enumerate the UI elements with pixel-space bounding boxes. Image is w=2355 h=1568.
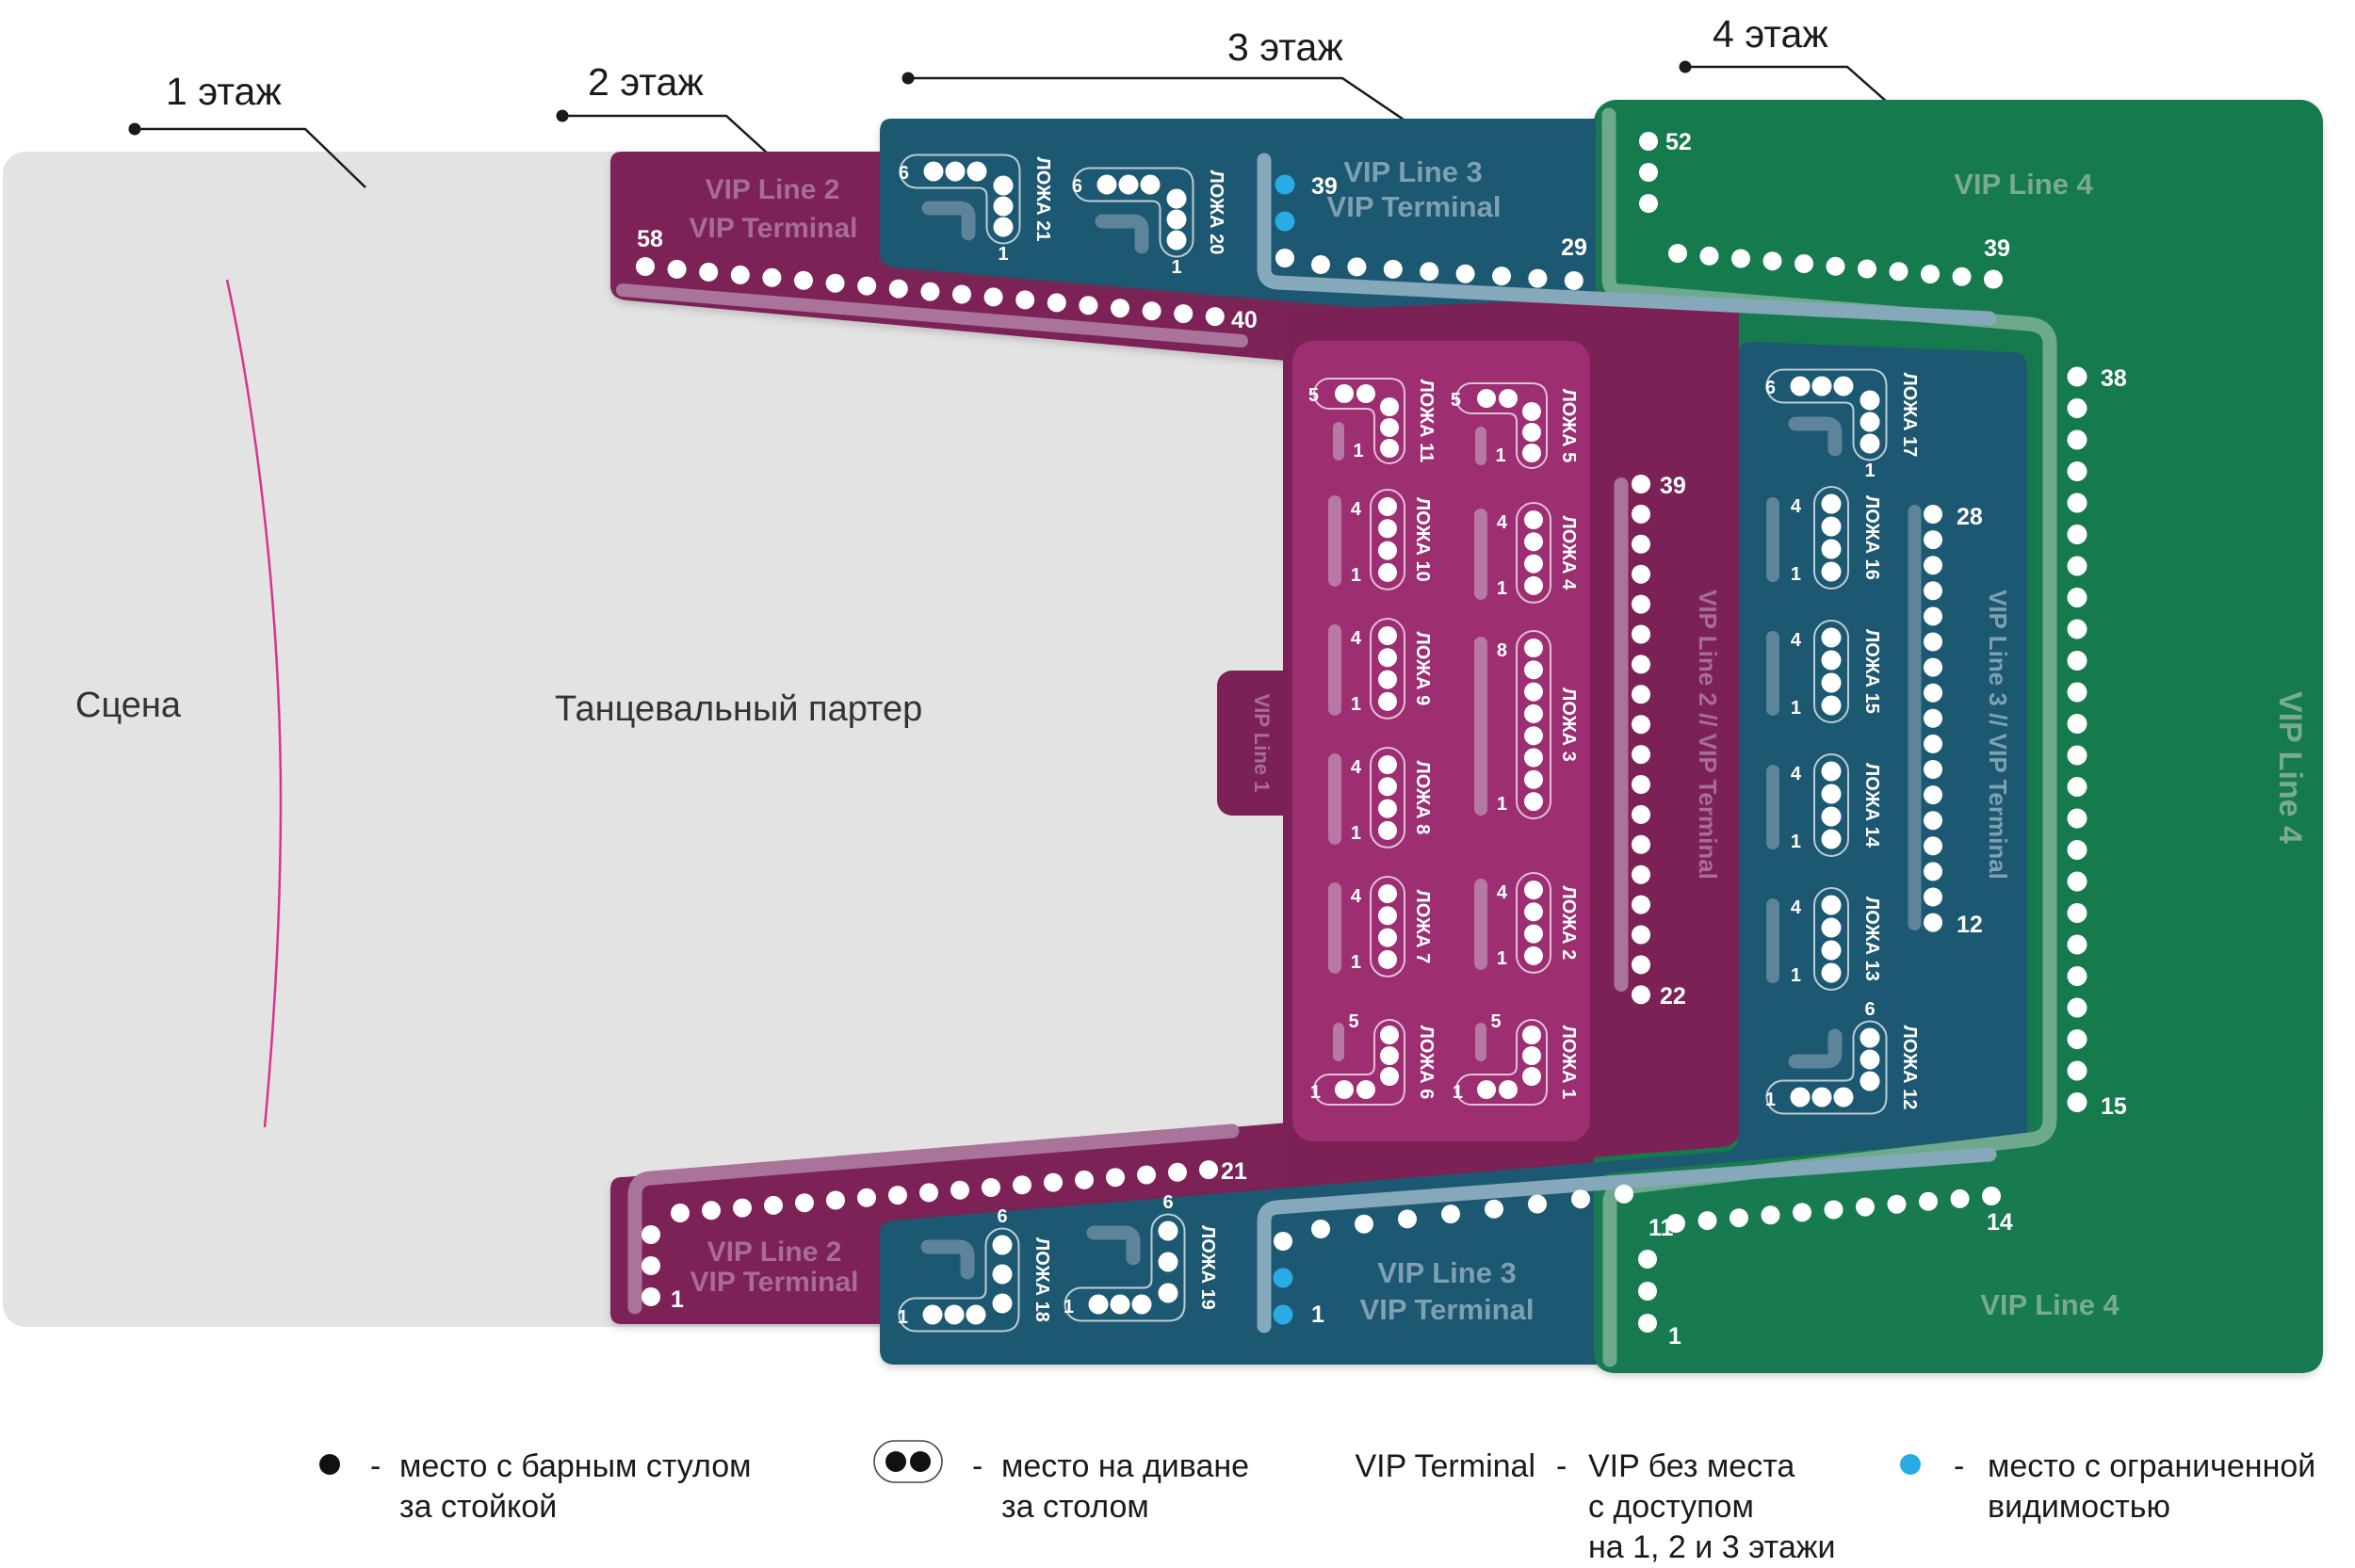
svg-text:39: 39 bbox=[1660, 473, 1686, 499]
svg-text:VIP Line 4: VIP Line 4 bbox=[1954, 168, 2093, 201]
svg-text:ЛОЖА 16: ЛОЖА 16 bbox=[1861, 495, 1882, 580]
svg-text:ЛОЖА 6: ЛОЖА 6 bbox=[1416, 1026, 1437, 1100]
svg-text:место с ограниченной: место с ограниченной bbox=[1988, 1448, 2315, 1484]
svg-text:VIP Terminal: VIP Terminal bbox=[690, 213, 858, 244]
svg-text:видимостью: видимостью bbox=[1988, 1489, 2170, 1525]
svg-text:VIP Line 2: VIP Line 2 bbox=[706, 174, 840, 205]
svg-text:5: 5 bbox=[1451, 390, 1461, 411]
svg-text:ЛОЖА 5: ЛОЖА 5 bbox=[1558, 389, 1579, 463]
svg-text:VIP Line 2 // VIP Terminal: VIP Line 2 // VIP Terminal bbox=[1694, 590, 1722, 880]
svg-text:6: 6 bbox=[1072, 176, 1082, 197]
svg-text:1: 1 bbox=[1351, 565, 1361, 586]
svg-text:VIP Terminal: VIP Terminal bbox=[1360, 1293, 1535, 1326]
svg-text:VIP Line 3: VIP Line 3 bbox=[1377, 1256, 1517, 1289]
svg-text:1: 1 bbox=[1351, 952, 1361, 973]
svg-text:ЛОЖА 10: ЛОЖА 10 bbox=[1412, 497, 1433, 582]
svg-text:58: 58 bbox=[637, 226, 663, 252]
svg-text:1: 1 bbox=[1791, 564, 1801, 585]
svg-text:28: 28 bbox=[1957, 504, 1983, 530]
svg-text:4: 4 bbox=[1497, 882, 1508, 903]
svg-text:ЛОЖА 19: ЛОЖА 19 bbox=[1197, 1225, 1218, 1310]
svg-text:1: 1 bbox=[1310, 1082, 1321, 1103]
svg-text:1: 1 bbox=[1497, 578, 1507, 599]
svg-text:4: 4 bbox=[1351, 628, 1362, 649]
svg-text:ЛОЖА 7: ЛОЖА 7 bbox=[1412, 890, 1433, 964]
svg-text:ЛОЖА 11: ЛОЖА 11 bbox=[1416, 380, 1437, 463]
svg-text:место с барным стулом: место с барным стулом bbox=[399, 1448, 752, 1484]
svg-text:6: 6 bbox=[1765, 378, 1776, 398]
svg-text:6: 6 bbox=[899, 163, 909, 184]
svg-text:Танцевальный партер: Танцевальный партер bbox=[555, 689, 922, 729]
svg-text:4: 4 bbox=[1791, 630, 1802, 651]
svg-text:1: 1 bbox=[1171, 257, 1181, 278]
svg-text:ЛОЖА 9: ЛОЖА 9 bbox=[1412, 632, 1433, 706]
svg-text:-: - bbox=[1556, 1448, 1567, 1484]
svg-text:1: 1 bbox=[1864, 461, 1875, 481]
svg-text:1: 1 bbox=[1791, 832, 1801, 852]
svg-text:-: - bbox=[972, 1448, 983, 1484]
svg-text:4: 4 bbox=[1791, 496, 1802, 517]
svg-text:-: - bbox=[370, 1448, 381, 1484]
svg-text:22: 22 bbox=[1660, 983, 1686, 1010]
svg-text:VIP Line 1: VIP Line 1 bbox=[1250, 694, 1274, 793]
svg-text:4: 4 bbox=[1351, 886, 1362, 907]
svg-text:за столом: за столом bbox=[1001, 1489, 1149, 1525]
svg-text:21: 21 bbox=[1221, 1158, 1247, 1185]
svg-text:5: 5 bbox=[1490, 1011, 1501, 1032]
svg-text:1: 1 bbox=[1497, 948, 1507, 969]
svg-text:ЛОЖА 3: ЛОЖА 3 bbox=[1558, 687, 1579, 762]
svg-text:8: 8 bbox=[1497, 640, 1507, 661]
svg-text:14: 14 bbox=[1987, 1209, 2013, 1236]
svg-text:3 этаж: 3 этаж bbox=[1227, 25, 1343, 69]
svg-text:4: 4 bbox=[1791, 764, 1802, 784]
svg-text:ЛОЖА 1: ЛОЖА 1 bbox=[1558, 1026, 1579, 1100]
svg-text:место на диване: место на диване bbox=[1001, 1448, 1249, 1484]
svg-text:6: 6 bbox=[1864, 999, 1875, 1020]
svg-text:ЛОЖА 20: ЛОЖА 20 bbox=[1206, 170, 1226, 255]
svg-text:1: 1 bbox=[1791, 698, 1801, 719]
svg-text:на 1, 2 и 3 этажи: на 1, 2 и 3 этажи bbox=[1588, 1529, 1836, 1565]
svg-text:40: 40 bbox=[1231, 307, 1258, 333]
svg-text:с доступом: с доступом bbox=[1588, 1489, 1754, 1525]
svg-text:1: 1 bbox=[1064, 1297, 1074, 1317]
svg-text:ЛОЖА 17: ЛОЖА 17 bbox=[1899, 373, 1920, 458]
svg-text:ЛОЖА 13: ЛОЖА 13 bbox=[1861, 897, 1882, 981]
svg-text:ЛОЖА 12: ЛОЖА 12 bbox=[1899, 1026, 1920, 1110]
svg-text:4: 4 bbox=[1497, 512, 1508, 533]
svg-text:6: 6 bbox=[997, 1206, 1007, 1227]
svg-text:5: 5 bbox=[1348, 1011, 1358, 1032]
svg-text:15: 15 bbox=[2101, 1093, 2127, 1120]
svg-text:-: - bbox=[1954, 1448, 1964, 1484]
svg-text:1: 1 bbox=[1495, 445, 1505, 466]
svg-text:1: 1 bbox=[1353, 441, 1363, 461]
svg-text:6: 6 bbox=[1162, 1192, 1173, 1213]
svg-text:VIP Terminal: VIP Terminal bbox=[1356, 1448, 1536, 1484]
svg-text:VIP Line 4: VIP Line 4 bbox=[1980, 1288, 2119, 1321]
svg-text:1: 1 bbox=[1351, 694, 1361, 715]
svg-text:1: 1 bbox=[1791, 965, 1801, 986]
svg-text:ЛОЖА 14: ЛОЖА 14 bbox=[1861, 763, 1882, 849]
svg-text:39: 39 bbox=[1311, 173, 1338, 200]
svg-text:ЛОЖА 8: ЛОЖА 8 bbox=[1412, 761, 1433, 835]
svg-text:1: 1 bbox=[671, 1286, 684, 1313]
svg-text:5: 5 bbox=[1308, 385, 1319, 406]
svg-text:ЛОЖА 18: ЛОЖА 18 bbox=[1031, 1237, 1052, 1322]
svg-text:39: 39 bbox=[1984, 235, 2010, 262]
svg-text:1: 1 bbox=[998, 244, 1008, 265]
svg-text:VIP Line 2: VIP Line 2 bbox=[707, 1237, 842, 1268]
svg-text:4: 4 bbox=[1351, 499, 1362, 520]
svg-text:ЛОЖА 21: ЛОЖА 21 bbox=[1032, 157, 1053, 242]
svg-text:1: 1 bbox=[898, 1307, 908, 1328]
svg-text:1: 1 bbox=[1311, 1301, 1324, 1328]
svg-text:ЛОЖА 2: ЛОЖА 2 bbox=[1558, 886, 1579, 961]
svg-text:4: 4 bbox=[1791, 897, 1802, 918]
svg-text:1: 1 bbox=[1351, 823, 1361, 844]
svg-text:29: 29 bbox=[1561, 234, 1587, 261]
svg-text:VIP Line 3: VIP Line 3 bbox=[1343, 155, 1483, 188]
svg-text:ЛОЖА 15: ЛОЖА 15 bbox=[1861, 629, 1882, 714]
svg-text:4: 4 bbox=[1351, 757, 1362, 778]
svg-text:4 этаж: 4 этаж bbox=[1713, 12, 1828, 56]
svg-text:VIP Terminal: VIP Terminal bbox=[1327, 190, 1502, 223]
svg-text:1: 1 bbox=[1497, 794, 1507, 815]
svg-text:ЛОЖА 4: ЛОЖА 4 bbox=[1558, 516, 1579, 590]
svg-text:1: 1 bbox=[1765, 1090, 1776, 1110]
svg-text:VIP Terminal: VIP Terminal bbox=[690, 1267, 859, 1298]
svg-text:1: 1 bbox=[1668, 1323, 1681, 1350]
svg-text:12: 12 bbox=[1957, 912, 1983, 938]
svg-text:VIP Line 4: VIP Line 4 bbox=[2272, 691, 2308, 844]
svg-text:1 этаж: 1 этаж bbox=[166, 70, 282, 113]
svg-text:VIP Line 3 // VIP Terminal: VIP Line 3 // VIP Terminal bbox=[1984, 590, 2012, 880]
svg-text:2 этаж: 2 этаж bbox=[588, 60, 704, 104]
svg-text:1: 1 bbox=[1453, 1082, 1463, 1103]
svg-text:Сцена: Сцена bbox=[75, 686, 182, 725]
svg-text:VIP без места: VIP без места bbox=[1588, 1448, 1795, 1484]
svg-text:52: 52 bbox=[1665, 129, 1692, 155]
svg-text:38: 38 bbox=[2101, 365, 2127, 392]
svg-text:за стойкой: за стойкой bbox=[399, 1489, 557, 1525]
